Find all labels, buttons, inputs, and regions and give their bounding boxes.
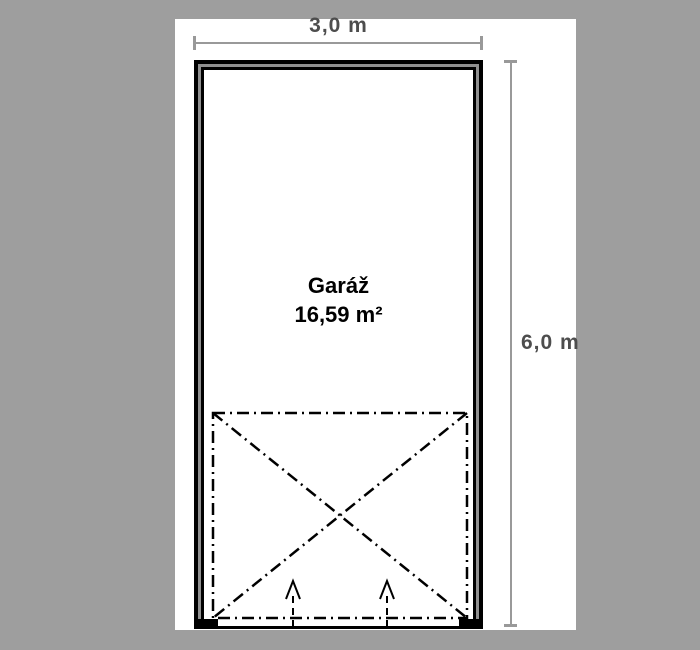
height-dimension-line — [510, 61, 512, 627]
height-dimension-tick-top — [504, 60, 517, 63]
room-area: 16,59 m² — [204, 300, 473, 329]
room-name: Garáž — [204, 271, 473, 300]
height-dimension-label: 6,0 m — [521, 331, 580, 355]
garage-door-threshold — [194, 626, 483, 629]
width-dimension-line — [194, 42, 483, 44]
height-dimension-tick-bottom — [504, 624, 517, 627]
room-label: Garáž 16,59 m² — [204, 271, 473, 329]
garage-walls — [194, 60, 483, 629]
width-dimension-tick-right — [480, 36, 483, 50]
garage-walls-fill — [198, 64, 479, 629]
width-dimension-label: 3,0 m — [194, 14, 483, 38]
width-dimension-tick-left — [193, 36, 196, 50]
garage-walls-inner-stroke — [201, 67, 476, 629]
